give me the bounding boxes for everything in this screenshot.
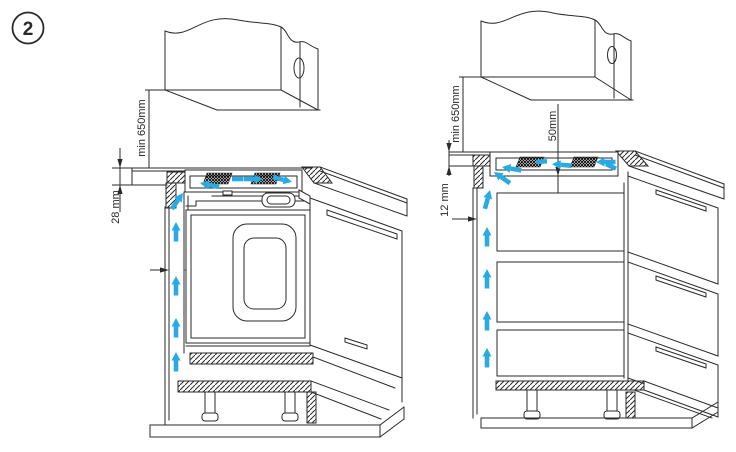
cabinet-wall <box>473 188 477 418</box>
airflow-arrow <box>483 227 492 247</box>
airflow-dash <box>232 177 243 182</box>
airflow-arrow <box>172 318 181 338</box>
oven <box>184 190 402 378</box>
airflow-arrow <box>483 269 492 289</box>
oven-door <box>186 210 310 343</box>
floor <box>150 407 404 437</box>
airflow-arrow <box>172 276 181 296</box>
drawer-box <box>497 262 624 322</box>
airflow-arrow <box>172 352 181 372</box>
plinth-board <box>178 381 311 392</box>
wall-cabinet <box>481 11 633 100</box>
dim-label-12mm: 12 mm <box>439 183 451 217</box>
adjustable-foot <box>285 392 295 413</box>
oven-bottom-panel <box>190 353 313 364</box>
plinth-board <box>496 381 644 390</box>
dim-label-50mm: 50mm <box>547 111 559 142</box>
installation-diagram-page: 2 min 650mm 28 mm <box>0 0 736 452</box>
hob-vent <box>570 157 598 167</box>
left-diagram-hob-above-oven: min 650mm 28 mm 30mm <box>110 19 407 437</box>
adjustable-foot <box>205 392 215 413</box>
cabinet-handle <box>294 58 304 78</box>
figure-canvas: 2 min 650mm 28 mm <box>0 0 736 452</box>
drawer-box <box>497 193 624 251</box>
figure-badge: 2 <box>13 13 44 44</box>
dim-label-28mm: 28 mm <box>110 190 122 224</box>
adjustable-foot <box>607 390 617 411</box>
dimension-worktop-28mm: 28 mm <box>110 148 132 224</box>
dimension-min-650: min 650mm <box>450 77 482 152</box>
floor <box>481 402 718 428</box>
right-diagram-hob-above-drawers: min 650mm 12 mm 50mm <box>439 11 724 428</box>
badge-number: 2 <box>23 19 34 40</box>
cabinet-side-panel-section <box>474 166 483 188</box>
wall-cabinet <box>165 19 320 110</box>
airflow-arrow <box>172 222 181 242</box>
airflow-dash <box>536 159 547 164</box>
dim-label-min-650: min 650mm <box>450 85 462 142</box>
plinth-side-section <box>626 392 635 418</box>
airflow-arrow <box>481 189 495 210</box>
dim-label-min-650: min 650mm <box>136 99 148 156</box>
drawer-unit <box>497 172 718 410</box>
base-and-floor <box>150 353 404 437</box>
cabinet-handle <box>608 47 617 64</box>
airflow-arrow <box>483 311 492 331</box>
adjustable-foot <box>527 390 537 411</box>
airflow-arrow <box>483 348 492 368</box>
drawer-box <box>497 330 624 376</box>
plinth-side-section <box>307 392 316 423</box>
cabinet-wall <box>165 207 169 425</box>
